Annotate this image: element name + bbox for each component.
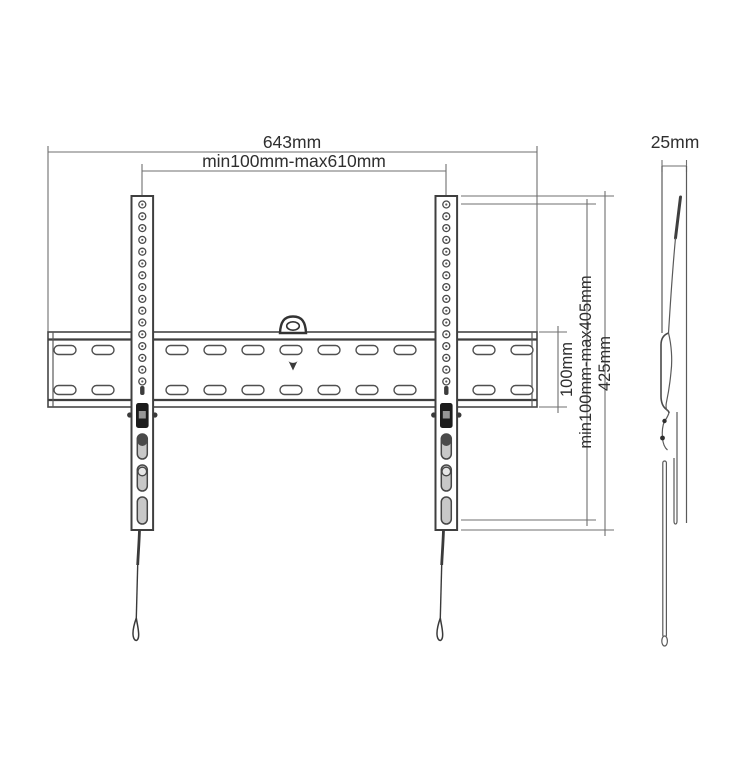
wall-plate: [48, 317, 537, 408]
depth-label: 25mm: [651, 132, 700, 152]
overall-width-label: 643mm: [263, 132, 321, 152]
level-bubble: [280, 317, 306, 334]
side-pull-rod: [662, 461, 668, 646]
dimension-depth: 25mm: [651, 132, 700, 172]
dimension-plate-height: 100mm: [539, 326, 576, 413]
pull-cord-right: [437, 530, 443, 640]
right-tv-rail: [431, 196, 461, 530]
dimension-vesa-width: min100mm-max610mm: [142, 151, 446, 196]
front-view: 643mm min100mm-max610mm: [48, 132, 614, 640]
side-profile: [660, 166, 686, 646]
plate-height-label: 100mm: [558, 342, 576, 397]
vesa-width-label: min100mm-max610mm: [202, 151, 386, 171]
vesa-height-label: min100mm-max405mm: [577, 275, 595, 448]
left-tv-rail: [127, 196, 157, 530]
side-view: 25mm: [651, 132, 700, 646]
pull-cord-left: [133, 530, 139, 640]
drawing-canvas: 643mm min100mm-max610mm: [0, 0, 746, 769]
arm-height-label: 425mm: [596, 336, 614, 391]
side-hook: [660, 413, 669, 450]
technical-drawing: 643mm min100mm-max610mm: [0, 0, 746, 769]
